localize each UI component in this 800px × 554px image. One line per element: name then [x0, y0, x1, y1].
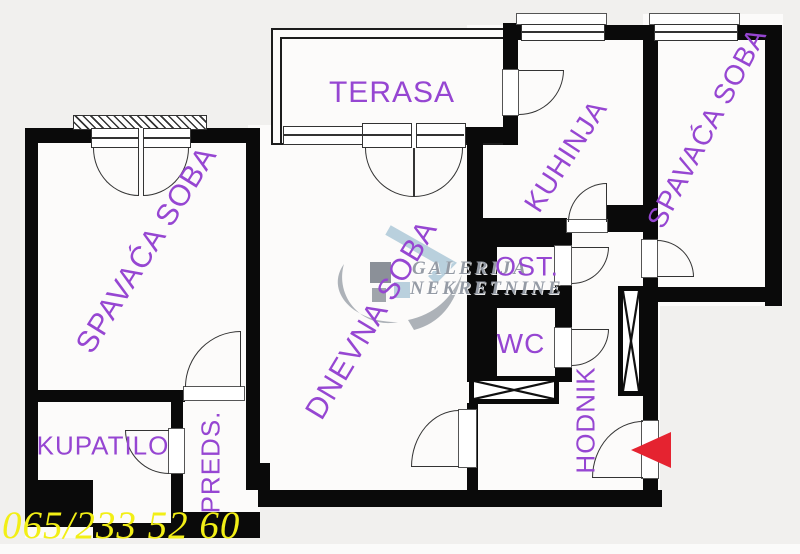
wall — [246, 463, 270, 490]
room-label-kupatilo: KUPATILO — [37, 431, 170, 462]
shaft-x-lines — [623, 291, 639, 391]
room-label-ost: OST. — [495, 252, 559, 283]
wall — [643, 478, 658, 507]
window-line — [655, 31, 737, 33]
wall — [246, 392, 260, 463]
door-frame — [168, 428, 185, 474]
shaft-box-vertical — [618, 286, 644, 396]
window — [521, 24, 605, 41]
room-label-preds: PREDS. — [196, 411, 227, 514]
door-frame — [183, 386, 245, 401]
window — [654, 24, 738, 41]
wall — [643, 277, 658, 287]
door-frame — [554, 327, 572, 368]
wall — [765, 25, 782, 306]
room-label-hodnik: HODNIK — [571, 366, 602, 473]
wall — [467, 128, 483, 232]
door-frame — [641, 239, 658, 278]
room-label-terasa: TERASA — [329, 76, 455, 110]
wall — [258, 490, 662, 507]
wall — [246, 128, 260, 392]
window-mullion — [411, 123, 417, 148]
wall — [25, 390, 185, 402]
phone-number: 065/233 52 60 — [2, 503, 240, 548]
entrance-arrow-icon — [631, 432, 671, 468]
door-frame — [502, 69, 519, 116]
wall — [643, 287, 658, 423]
floor-plan: GALERIJA NEKRETNINE TERASA SPAVAĆA SOBA … — [0, 0, 800, 554]
shaft-x-lines — [474, 381, 554, 399]
window-mullion — [138, 128, 144, 148]
wall — [25, 128, 38, 480]
window-line — [522, 31, 604, 33]
window-line — [284, 134, 464, 136]
wall — [658, 287, 782, 302]
door-frame — [458, 409, 477, 468]
shaft-box-horizontal — [469, 376, 559, 404]
room-label-wc: WC — [497, 328, 546, 360]
